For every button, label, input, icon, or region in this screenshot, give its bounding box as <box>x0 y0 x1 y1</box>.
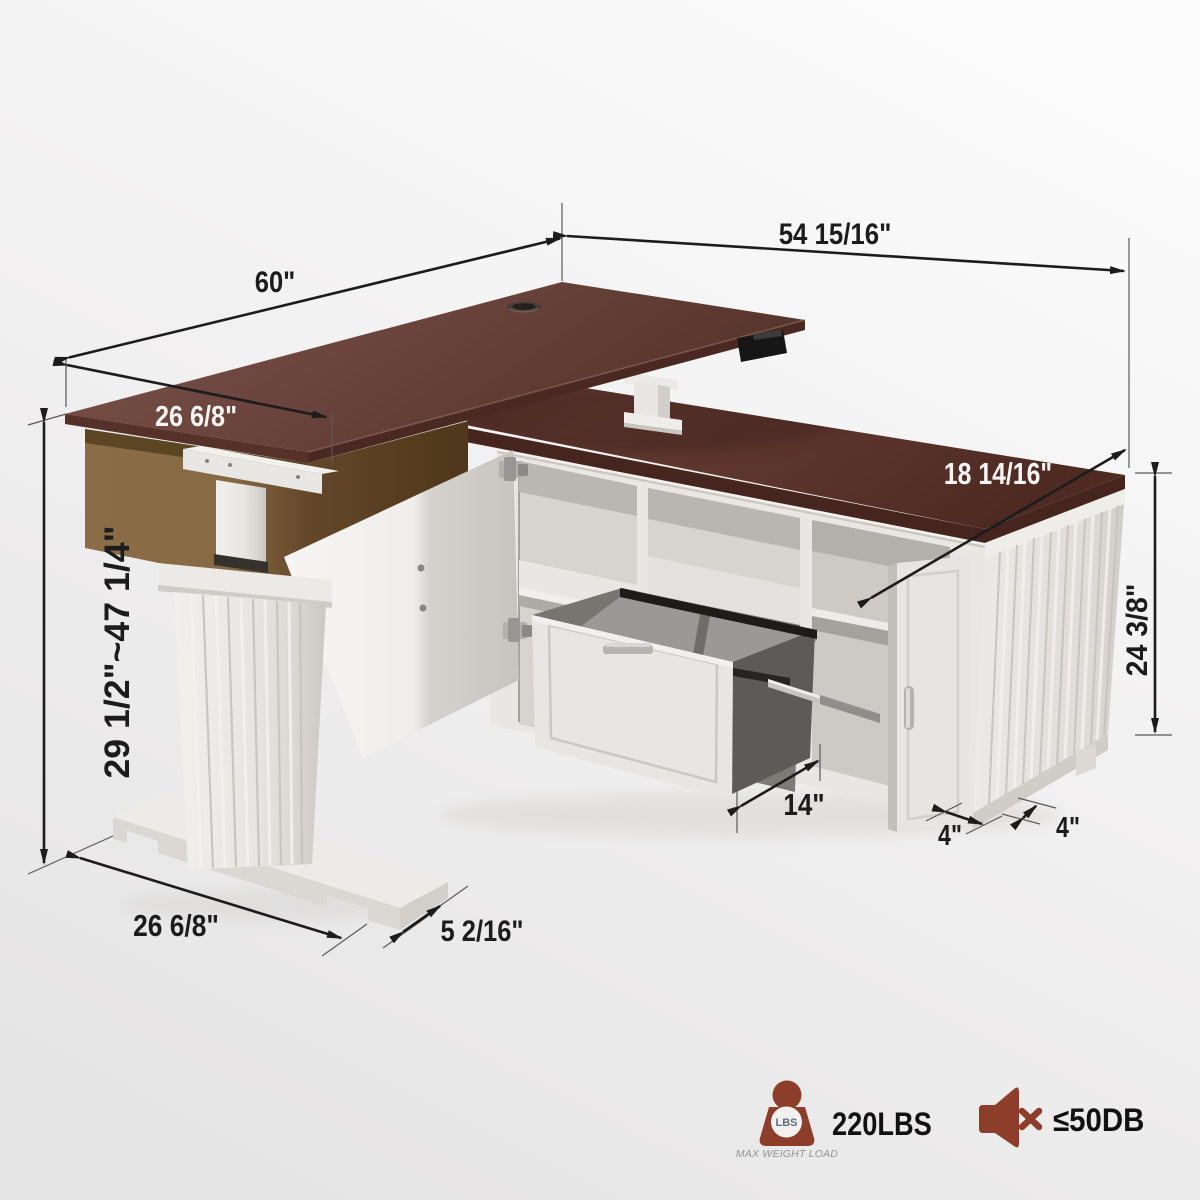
svg-text:54 15/16": 54 15/16" <box>779 217 892 250</box>
svg-text:26 6/8": 26 6/8" <box>155 399 237 432</box>
svg-text:MAX WEIGHT LOAD: MAX WEIGHT LOAD <box>736 1148 838 1160</box>
svg-text:≤50DB: ≤50DB <box>1053 1102 1144 1138</box>
svg-text:14": 14" <box>783 788 824 823</box>
svg-text:4": 4" <box>1056 810 1080 843</box>
svg-text:60": 60" <box>255 265 295 298</box>
svg-text:29 1/2"~47 1/4": 29 1/2"~47 1/4" <box>98 525 137 778</box>
svg-text:18 14/16": 18 14/16" <box>944 456 1052 490</box>
svg-text:24 3/8": 24 3/8" <box>1121 584 1154 677</box>
svg-text:26 6/8": 26 6/8" <box>133 909 219 943</box>
svg-text:4": 4" <box>938 818 962 851</box>
svg-text:220LBS: 220LBS <box>832 1107 932 1143</box>
svg-text:LBS: LBS <box>776 1117 798 1129</box>
svg-text:5 2/16": 5 2/16" <box>441 914 524 947</box>
